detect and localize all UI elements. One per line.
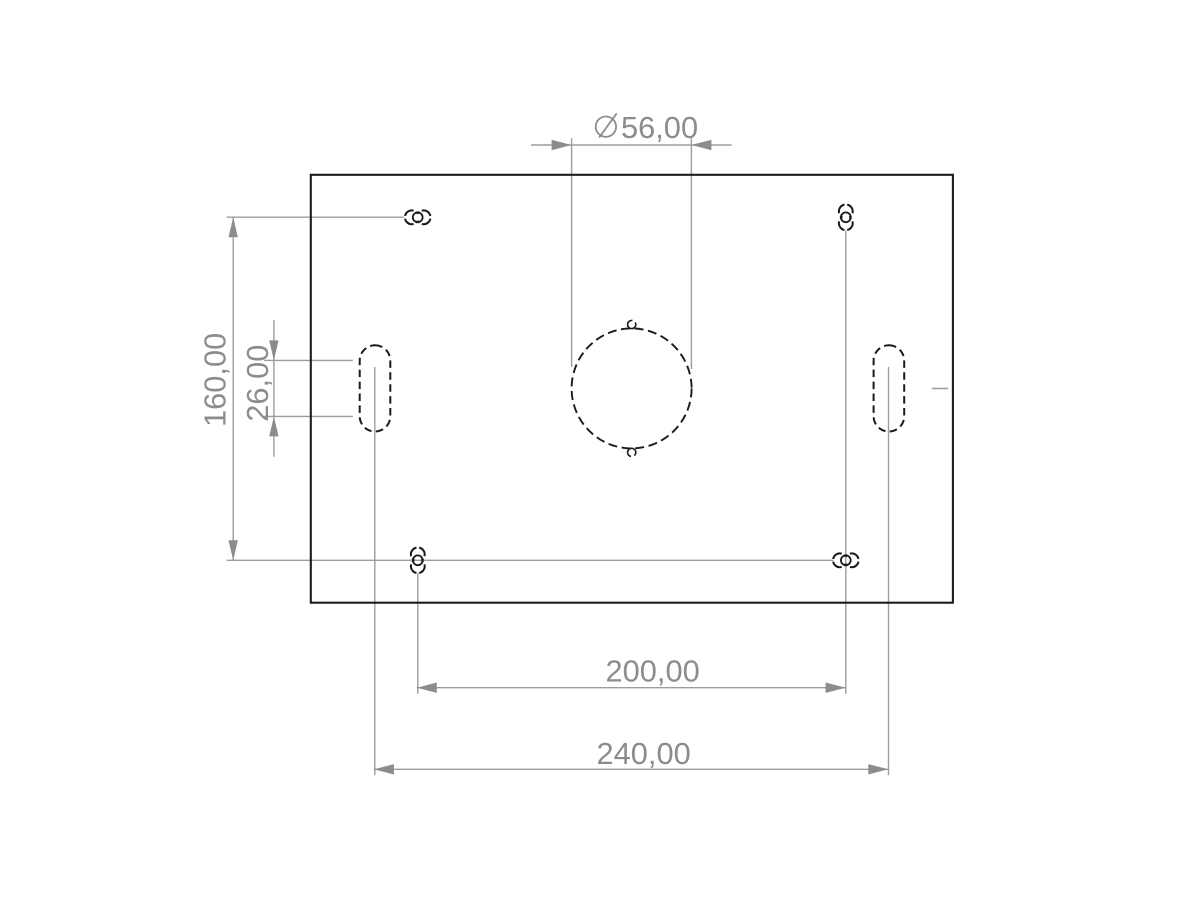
svg-text:240,00: 240,00	[597, 736, 691, 771]
svg-text:26,00: 26,00	[240, 345, 275, 422]
svg-text:56,00: 56,00	[621, 110, 698, 145]
svg-text:200,00: 200,00	[606, 653, 700, 688]
svg-text:160,00: 160,00	[198, 333, 233, 427]
